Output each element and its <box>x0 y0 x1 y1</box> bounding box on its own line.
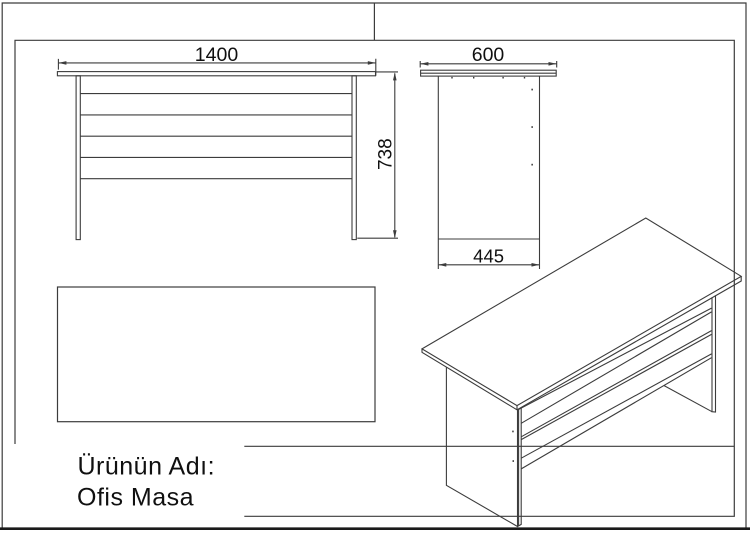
svg-text:1400: 1400 <box>195 44 239 66</box>
svg-text:600: 600 <box>472 44 505 66</box>
svg-text:738: 738 <box>375 138 396 170</box>
svg-text:Ofis Masa: Ofis Masa <box>77 483 194 511</box>
svg-text:445: 445 <box>473 246 504 267</box>
svg-text:Ürünün Adı:: Ürünün Adı: <box>78 453 216 481</box>
